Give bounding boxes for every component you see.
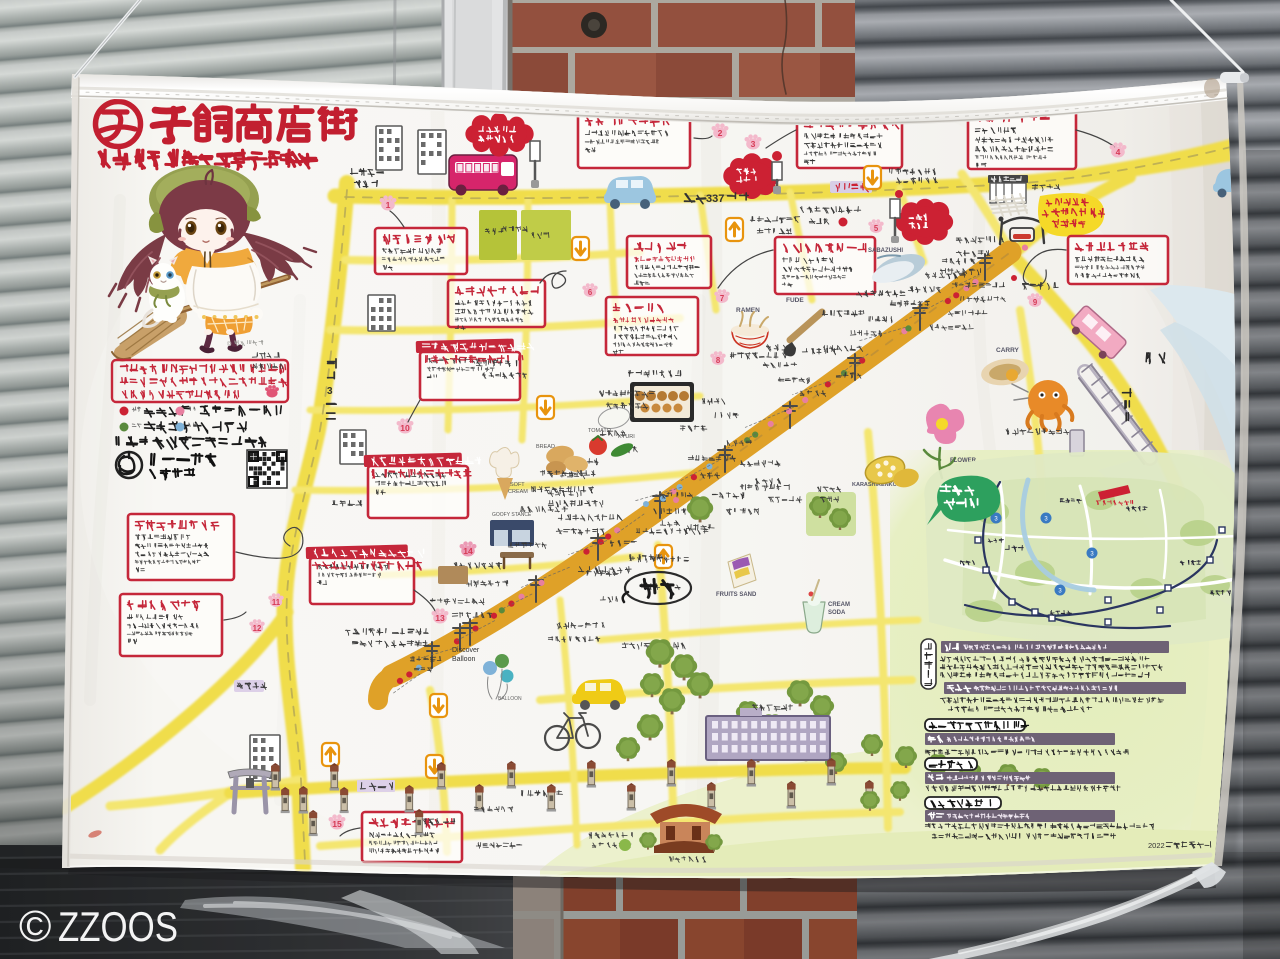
svg-text:10: 10 <box>400 423 410 433</box>
svg-text:RAMEN: RAMEN <box>736 307 760 314</box>
svg-text:11: 11 <box>272 598 281 607</box>
svg-text:FUDE: FUDE <box>786 297 804 304</box>
svg-text:4: 4 <box>1116 147 1121 157</box>
svg-text:KYURI: KYURI <box>618 434 635 440</box>
svg-text:©: © <box>227 341 232 348</box>
svg-text:SOFT: SOFT <box>510 482 525 488</box>
svg-text:FRUITS SAND: FRUITS SAND <box>716 592 757 598</box>
svg-text:3: 3 <box>327 386 333 397</box>
svg-text:TOMATO: TOMATO <box>588 428 612 434</box>
svg-text:337: 337 <box>706 193 724 205</box>
svg-text:3: 3 <box>751 139 756 149</box>
svg-text:6: 6 <box>588 288 593 297</box>
svg-text:©: © <box>19 902 51 951</box>
svg-text:Balloon: Balloon <box>452 656 475 663</box>
svg-text:9: 9 <box>1033 298 1038 307</box>
svg-text:BREAD: BREAD <box>536 444 555 450</box>
svg-text:GOOFY STANCE: GOOFY STANCE <box>492 512 532 518</box>
svg-text:8: 8 <box>716 356 721 365</box>
svg-text:SABAZUSHI: SABAZUSHI <box>868 248 903 254</box>
svg-text:14: 14 <box>463 546 473 556</box>
svg-text:1: 1 <box>386 200 391 210</box>
svg-text:7: 7 <box>720 294 724 303</box>
svg-text:2: 2 <box>718 128 723 138</box>
svg-text:15: 15 <box>332 819 342 829</box>
svg-text:CREAM: CREAM <box>508 489 528 495</box>
svg-text:SODA: SODA <box>828 610 846 616</box>
svg-text:CREAM: CREAM <box>828 602 850 608</box>
svg-text:13: 13 <box>435 613 445 623</box>
svg-text:Discover: Discover <box>452 647 480 654</box>
svg-text:2022: 2022 <box>1148 841 1165 850</box>
svg-text:5: 5 <box>874 224 879 233</box>
svg-text:CARRY: CARRY <box>996 347 1020 354</box>
svg-text:ZZOOS: ZZOOS <box>58 903 178 950</box>
svg-text:12: 12 <box>253 624 262 633</box>
svg-text:BALLOON: BALLOON <box>498 696 522 702</box>
